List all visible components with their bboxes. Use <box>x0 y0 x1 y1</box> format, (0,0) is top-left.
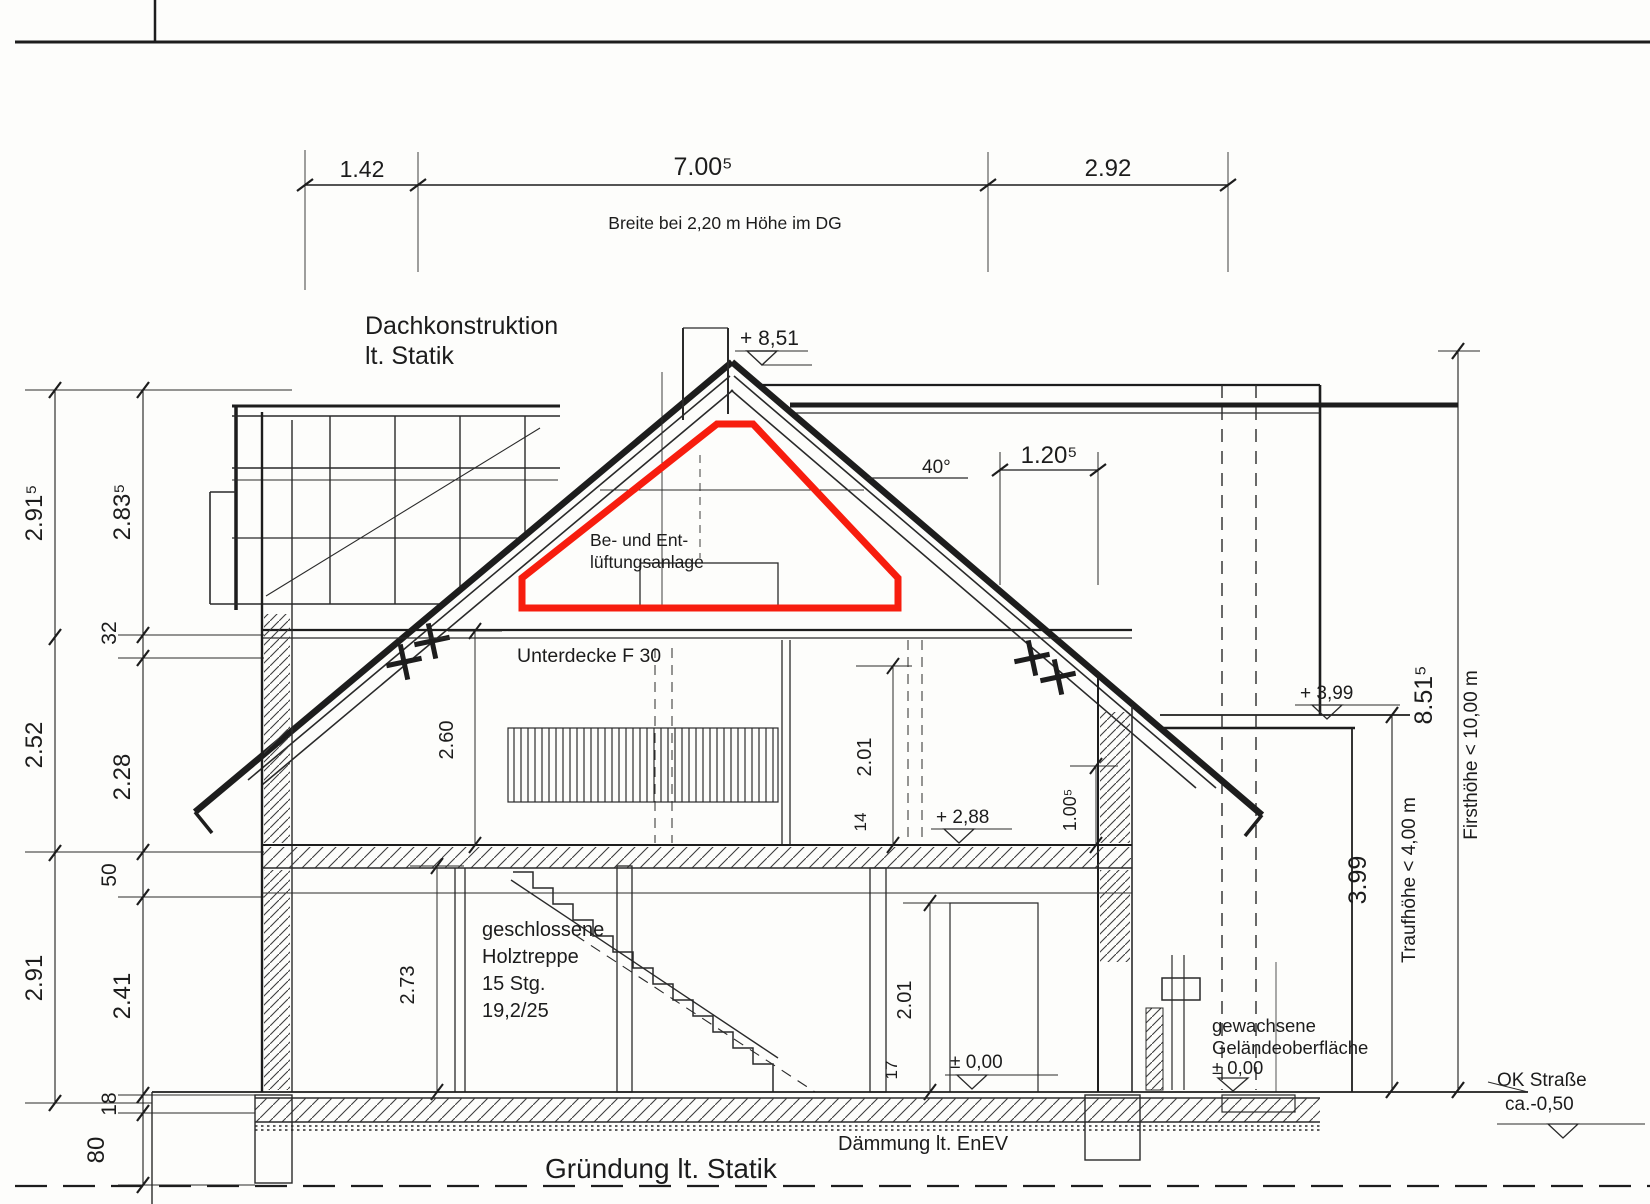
dim-ridge-height: 8.51⁵ <box>1410 665 1438 724</box>
dim-top-note: Breite bei 2,20 m Höhe im DG <box>608 213 841 233</box>
roof-construction-label: Dachkonstruktion lt. Statik <box>365 312 558 370</box>
label-ceiling: Unterdecke F 30 <box>517 645 661 667</box>
building-section-svg: 1.42 7.00⁵ 2.92 Breite bei 2,20 m Höhe i… <box>0 0 1650 1204</box>
dim-left-inner-mid: 2.28 <box>109 754 136 801</box>
label-terrain-2: Geländeoberfläche <box>1212 1037 1368 1058</box>
dim-left-outer-top: 2.91⁵ <box>21 485 48 542</box>
right-wall-hatch-dg <box>1100 712 1130 843</box>
eg-stair-wall <box>617 866 632 1092</box>
label-foundation: Gründung lt. Statik <box>545 1153 778 1184</box>
right-wall-hatch-eg <box>1100 870 1130 962</box>
dim-left-outer-mid: 2.52 <box>21 722 48 769</box>
dim-top-left: 1.42 <box>340 156 385 182</box>
dim-left-inner-top: 2.83⁵ <box>109 484 136 541</box>
level-upper-floor: + 2,88 <box>936 807 989 828</box>
level-ridge: + 8,51 <box>740 327 799 350</box>
label-ventilation-1: Be- und Ent- <box>590 530 688 550</box>
foundation: Dämmung lt. EnEV Gründung lt. Statik <box>15 1095 1650 1186</box>
label-stairs-4: 19,2/25 <box>482 1000 549 1022</box>
level-annex-roof: + 3,99 <box>1300 683 1353 704</box>
ridge-level-marker: + 8,51 <box>735 327 812 365</box>
dim-eg-room-height: 2.73 <box>397 966 419 1005</box>
upper-floor-slab <box>262 845 1132 893</box>
annex-roof-level-marker: + 3,99 <box>1295 683 1400 719</box>
dim-left-outer-bottom: 2.91 <box>21 955 48 1002</box>
scanned-section-drawing: 1.42 7.00⁵ 2.92 Breite bei 2,20 m Höhe i… <box>0 0 1650 1204</box>
floor-slab-hatch <box>255 1098 1135 1122</box>
label-ridge-height: Firsthöhe < 10,00 m <box>1461 670 1482 840</box>
dim-dg-room-height: 2.60 <box>436 721 458 760</box>
eg-interior-wall <box>870 868 886 1092</box>
dim-eg-step: 17 <box>882 1061 901 1080</box>
dim-left-inner-32: 32 <box>98 621 121 644</box>
dim-dg-lintel: 14 <box>851 813 870 832</box>
label-stairs-3: 15 Stg. <box>482 973 545 995</box>
level-ground-floor: ± 0,00 <box>950 1052 1003 1073</box>
dim-top-middle: 7.00⁵ <box>673 153 732 181</box>
dim-top-right: 2.92 <box>1085 155 1132 182</box>
eg-staircase <box>511 872 815 1092</box>
dg-room-height-dim: 2.60 <box>436 623 502 853</box>
left-dimension-chains: 2.91⁵ 2.52 2.91 2.83⁵ 32 2.28 50 2.41 18… <box>21 382 292 1193</box>
dim-left-inner-50: 50 <box>98 863 121 886</box>
label-terrain-3: ± 0,00 <box>1212 1057 1263 1078</box>
label-roof-construction-1: Dachkonstruktion <box>365 312 558 340</box>
left-wall-hatch-dg <box>264 614 290 843</box>
upper-floor: 2.60 2.01 14 1.00⁵ + 2,88 <box>262 412 1132 1092</box>
ground-floor: geschlossene Holztreppe 15 Stg. 19,2/25 … <box>264 858 1276 1100</box>
label-terrain-1: gewachsene <box>1212 1015 1316 1036</box>
dim-eg-door-height: 2.01 <box>894 981 916 1020</box>
slab-hatch-dg <box>263 847 1131 868</box>
stairs-label: geschlossene Holztreppe 15 Stg. 19,2/25 <box>482 919 604 1022</box>
stair-flight-projection <box>508 728 778 802</box>
dg-door-height-dim: 2.01 14 <box>851 658 912 853</box>
ground-floor-level-marker: ± 0,00 <box>945 1052 1058 1089</box>
label-stairs-2: Holztreppe <box>482 946 579 968</box>
dim-dormer-width: 1.20⁵ <box>1021 442 1078 469</box>
label-ventilation-2: lüftungsanlage <box>590 552 704 572</box>
eg-room-height-dim: 2.73 <box>397 858 464 1100</box>
label-eaves-height: Traufhöhe < 4,00 m <box>1399 797 1420 963</box>
dormer-width-dimension: 1.20⁵ <box>992 442 1106 476</box>
label-insulation: Dämmung lt. EnEV <box>838 1133 1009 1155</box>
dim-dg-parapet: 1.00⁵ <box>1060 789 1080 832</box>
floor-slab-hatch-right <box>1135 1098 1320 1122</box>
dim-dg-door-height: 2.01 <box>854 738 876 777</box>
dim-left-inner-low: 2.41 <box>109 973 136 1020</box>
terrain-label: gewachsene Geländeoberfläche ± 0,00 <box>1212 1015 1368 1091</box>
label-stairs-1: geschlossene <box>482 919 604 941</box>
upper-floor-level-marker: + 2,88 <box>931 807 1012 843</box>
left-wall-hatch-eg <box>264 870 290 1090</box>
dim-eaves-height: 3.99 <box>1344 856 1372 905</box>
roof-pitch-annotation: 40° <box>867 457 968 478</box>
dim-left-inner-18: 18 <box>98 1092 121 1115</box>
label-roof-construction-2: lt. Statik <box>365 342 454 370</box>
sheet-border <box>15 0 1650 42</box>
top-dimension-chain: 1.42 7.00⁵ 2.92 Breite bei 2,20 m Höhe i… <box>297 150 1236 290</box>
right-dimension-chains: 3.99 Traufhöhe < 4,00 m 8.51⁵ Firsthöhe … <box>1344 343 1482 1098</box>
street-level-label: OK Straße ca.-0,50 <box>1488 1070 1645 1138</box>
dim-left-inner-80: 80 <box>83 1137 110 1164</box>
label-street-2: ca.-0,50 <box>1505 1094 1574 1115</box>
dim-roof-pitch: 40° <box>922 457 951 478</box>
